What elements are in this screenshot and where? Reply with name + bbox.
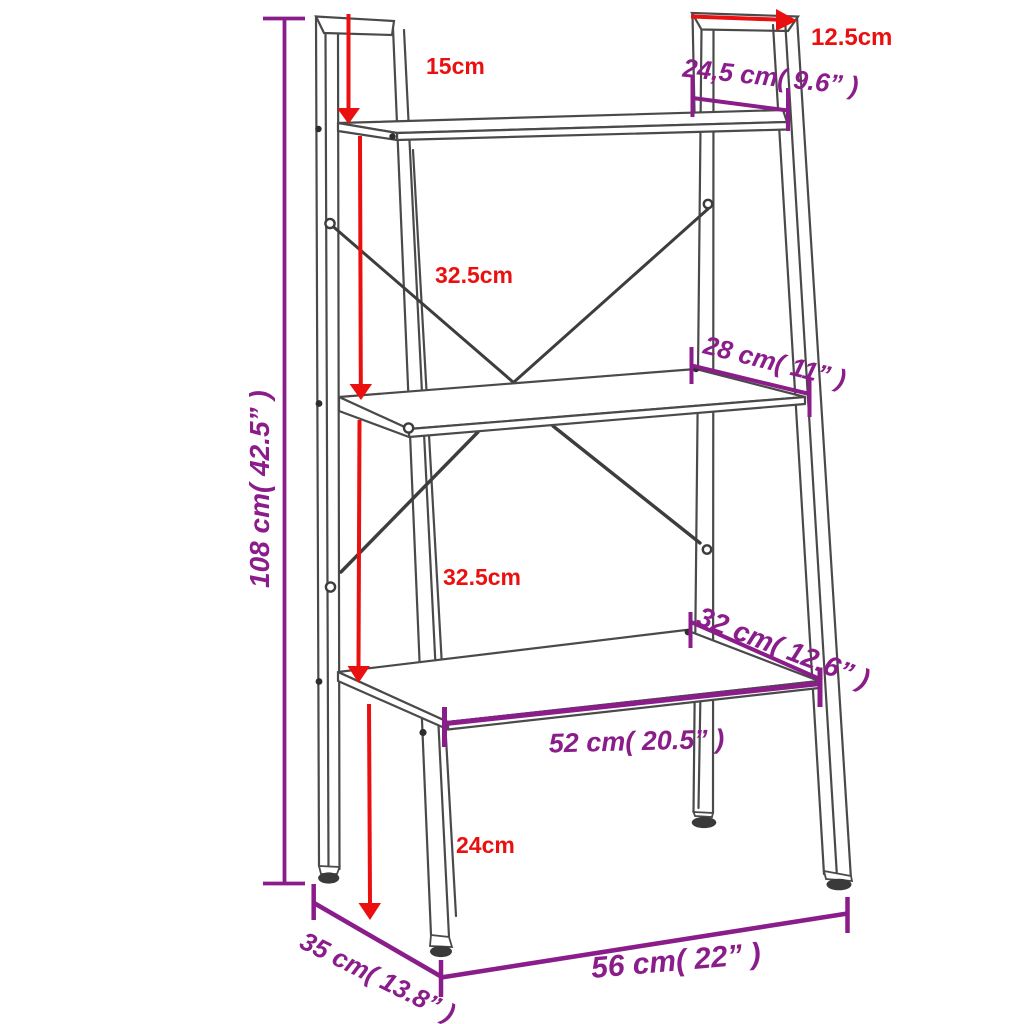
svg-text:108 cm( 42.5” ): 108 cm( 42.5” ) bbox=[244, 390, 275, 588]
svg-text:32.5cm: 32.5cm bbox=[435, 262, 513, 288]
svg-text:24cm: 24cm bbox=[456, 832, 515, 858]
svg-text:15cm: 15cm bbox=[426, 53, 485, 79]
svg-text:52 cm( 20.5” ): 52 cm( 20.5” ) bbox=[548, 724, 724, 759]
svg-text:12.5cm: 12.5cm bbox=[811, 24, 892, 51]
svg-text:32.5cm: 32.5cm bbox=[443, 564, 521, 590]
